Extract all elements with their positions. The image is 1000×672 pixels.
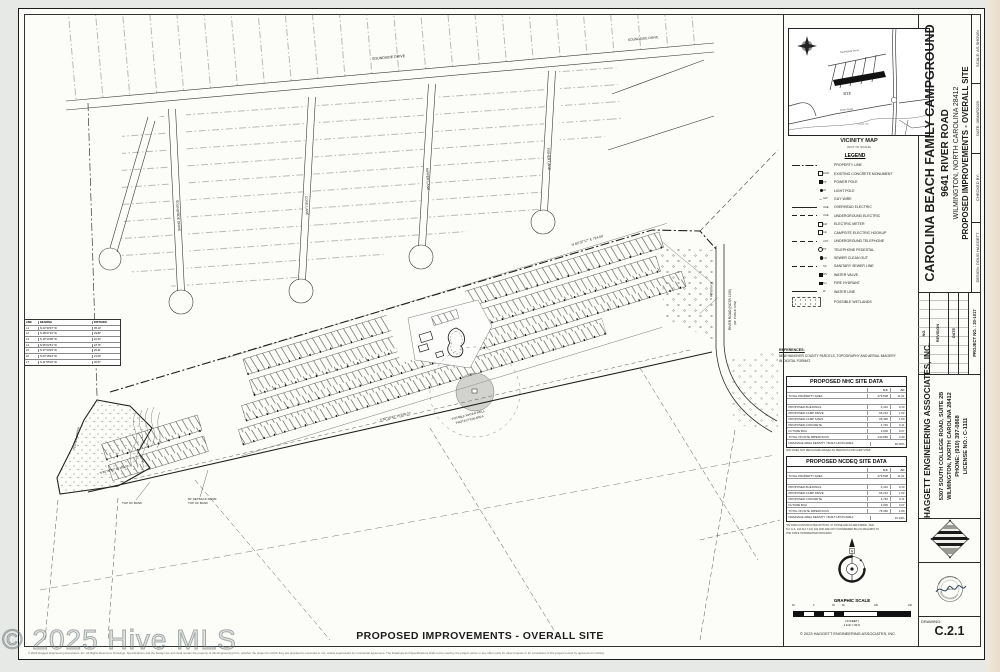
density-row: DRAINAGE AREA DENSITY / BUILT-UPON AREA1… [787,513,906,521]
overhead-electric-icon [792,207,817,208]
line-bearing-table: LINE BEARING DISTANCE L1N 24°30'37" W35.… [24,319,121,366]
table-title: PROPOSED NCDEQ SITE DATA [787,457,906,467]
firm-name: HAGGETT ENGINEERING ASSOCIATES, INC. [922,374,934,518]
density-row: DRAINAGE AREA DENSITY / BUILT-UPON AREA3… [787,439,906,447]
scale-ratio: 1 inch = 60 ft. [786,623,918,627]
line-table-row: L1N 24°30'37" W35.10' [25,325,120,331]
project-number: PROJECT NO. : 20-1017 [970,292,980,374]
sheet-title: PROPOSED IMPROVEMENTS - OVERALL SITE [961,14,971,292]
ncdeq-footnote: THE STATE STORMWATER PROGRAM [786,532,831,535]
revision-date-header: DATE [950,292,958,374]
table-row: TOTAL ON-SITE IMPERVIOUS78,3601.80 [787,507,906,513]
revision-header: REVISION [934,292,942,374]
table-row: TOTAL PROPERTY AREA479,50811.01 [787,392,906,398]
scale-tick: 60 [792,604,795,607]
line-table-row: L7N 41°55'23" W30.57' [25,359,120,365]
scale-title: GRAPHIC SCALE [786,598,918,603]
firm-license: LICENSE NO.: C-1111 [962,374,970,518]
scale-tick: 60 [842,604,845,607]
table-row: PROPOSED CONCRETE4,7400.11 [787,496,906,502]
sheet-bottom-title: PROPOSED IMPROVEMENTS - OVERALL SITE [310,630,650,642]
line-table-row: L4N 56°02'51" W18.76' [25,342,120,348]
street-label: NIPPER LANE [425,168,430,191]
legend-item: PPPOWER POLE [792,178,918,186]
column-divider [783,14,784,646]
ncdeq-footnote: N.C.G.S. 143-214.7 (b2) (b4) AND ARE NOT… [786,528,879,531]
scan-edge-strip [986,0,1000,672]
vicinity-map: SITE Soundside Drive River Road Telfair … [788,28,930,136]
property-line-icon [792,165,817,166]
firm-phone: PHONE: (910) 397-0868 [954,374,962,518]
line-table-row: L2N 48°27'32" W29.89' [25,330,120,336]
sanitary-sewer-icon [792,266,817,267]
firm-logo [928,517,972,561]
legend-item: WWATER LINE [792,288,918,296]
legend-item: ECMEXISTING CONCRETE MONUMENT [792,169,918,177]
firm-address1: 5307 SOUTH COLLEGE ROAD, SUITE 2B [938,374,946,518]
table-row: PROPOSED CAMP DRIVE66,2101.52 [787,490,906,496]
vicinity-title: VICINITY MAP [788,138,930,144]
legend-item: FHFIRE HYDRANT [792,279,918,287]
table-row: TOTAL PROPERTY AREA479,50811.01 [787,472,906,478]
table-title: PROPOSED NHC SITE DATA [787,377,906,387]
wetlands-icon [792,297,821,307]
references-line: NEW HANOVER COUNTY PARCELS, TOPOGRAPHY A… [779,354,896,358]
page-background: SOUNDSIDE DRIVE SOUNDSIDE DRIVE SOUNDSID… [0,0,1000,672]
engineer-seal: NORTH CAROLINA SEAL DOUGLAS N. HAGGETT [928,562,972,616]
nhc-site-data-table: PROPOSED NHC SITE DATA S.F.AC TOTAL PROP… [786,376,907,448]
table-row: FUTURE BUA3,0000.07 [787,427,906,433]
south-parcels [40,368,780,640]
checked-field: CHECKED BY: [973,153,982,222]
legend-item: WVWATER VALVE [792,271,918,279]
legend-item: COSEWER CLEAN OUT [792,254,918,262]
street-label: FISHER LANE [546,148,551,171]
line-table-row: L5N 37°40'15" W26.31' [25,347,120,353]
ncdeq-footnote: *RV PADS CONSTRUCTED WITH NO. 57 STONE A… [786,524,874,527]
scale-bar [793,611,911,617]
table-row: PROPOSED CAMP DRIVE66,2101.52 [787,410,906,416]
firm-address2: WILMINGTON, NORTH CAROLINA 28412 [946,374,954,518]
table-row: PROPOSED CONCRETE4,7400.11 [787,422,906,428]
scale-copyright: © 2023 HAGGETT ENGINEERING ASSOCIATES, I… [783,631,913,636]
date-field: DATE: 06MAR2023 [973,84,982,153]
graphic-scale: GRAPHIC SCALE 60 0 30 60 120 240 ( IN FE… [786,598,918,627]
legend-item: TPTELEPHONE PEDESTAL [792,245,918,253]
titleblock-divider-line [918,616,981,617]
road-label: RIVER ROAD (NCSR 1100) [728,289,732,330]
project-title: CAROLINA BEACH FAMILY CAMPGROUND [923,14,938,292]
street-label: SOUNDSIDE DRIVE [175,200,181,232]
revision-col-line [968,292,969,374]
tree-cluster-east [660,248,714,340]
revision-col-line [958,292,959,374]
nhc-note: NHC DOES NOT RECOGNIZE GRAVEL AS PERVIOU… [786,449,870,452]
compass-rose: N [828,536,876,590]
references-line: IN DIGITAL FORMAT. [779,359,811,363]
water-line-icon [792,291,817,292]
scale-field: SCALE: AS SHOWN [973,14,982,83]
underground-electric-icon [792,215,817,216]
tree-cluster-road [728,350,778,430]
legend-item: UGEUNDERGROUND ELECTRIC [792,212,918,220]
table-row: FUTURE BUA3,0000.07 [787,502,906,508]
legend-item: CECAMPSITE ELECTRIC HOOKUP [792,229,918,237]
road-label: (60' PUBLIC R/W) [733,301,737,325]
north-arrow-icon [849,538,855,547]
vicinity-subtitle: (NOT TO SCALE) [788,145,930,149]
project-address: 9641 RIVER ROAD [940,14,952,292]
legend-title: LEGEND [792,153,918,159]
revision-col-line [948,292,949,374]
line-table-row: L6N 63°18'44" W21.09' [25,353,120,359]
project-city: WILMINGTON, NORTH CAROLINA 28412 [952,14,961,292]
hive-mls-watermark: © 2025 Hive MLS [2,624,237,656]
ncdeq-site-data-table: PROPOSED NCDEQ SITE DATA S.F.AC TOTAL PR… [786,456,907,522]
legend-item: EMELECTRIC METER [792,220,918,228]
legend-item: POSSIBLE WETLANDS [792,296,918,307]
site-plan: SOUNDSIDE DRIVE SOUNDSIDE DRIVE SOUNDSID… [24,14,783,646]
annotation: TOP OF BANK [122,501,142,505]
legend-item: LPLIGHT POLE [792,186,918,194]
bearing-label: N 89°37'17" E 724.00' [571,234,604,247]
table-row: PROPOSED BUILDINGS4,4100.10 [787,484,906,490]
legend-item: PROPERTY LINE [792,161,918,169]
legend: LEGEND PROPERTY LINE ECMEXISTING CONCRET… [792,153,918,307]
bearing-label: S 03°58'04" E [709,281,714,300]
table-row: TOTAL ON-SITE IMPERVIOUS143,8503.30 [787,433,906,439]
scale-tick: 240 [908,604,912,607]
site-label: SITE [843,91,852,96]
design-field: DESIGN: DOUG HAGGETT [973,223,982,292]
north-label: N [851,550,854,554]
references-title: REFERENCES: [779,348,805,352]
scale-tick: 120 [874,604,878,607]
vicinity-creek-label: Telfair Cut [858,122,869,126]
table-row: PROPOSED CAMP SITES65,4901.50 [787,416,906,422]
legend-item: OHEOVERHEAD ELECTRIC [792,203,918,211]
annotation: TOP OF BANK [188,501,208,505]
legend-item: SSSANITARY SEWER LINE [792,262,918,270]
drawing-number: C.2.1 [918,624,981,638]
scale-tick: 0 [813,604,814,607]
well-head [472,389,477,393]
legend-item: UGTUNDERGROUND TELEPHONE [792,237,918,245]
line-table-header: LINE [25,321,38,324]
underground-telephone-icon [792,241,817,242]
table-row: PROPOSED BUILDINGS4,4100.10 [787,404,906,410]
scale-tick: 30 [832,604,835,607]
legend-item: ←GWGUY WIRE [792,195,918,203]
line-table-row: L3N 19°14'08" W22.43' [25,336,120,342]
street-label: COVE LANE [304,196,309,216]
campsite-rows [90,229,693,484]
